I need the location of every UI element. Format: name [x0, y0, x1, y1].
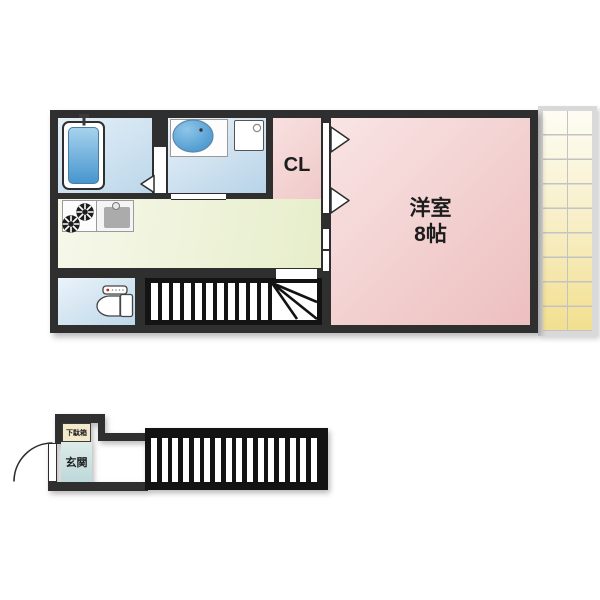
kitchen-room-door: [322, 228, 330, 272]
closet-label: CL: [273, 118, 321, 213]
toilet-room: [58, 278, 135, 325]
balcony-tile-grid: [543, 111, 592, 331]
entrance-wall: [55, 414, 62, 444]
lower-stairs-treads: [151, 438, 317, 482]
entrance-wall: [48, 482, 148, 491]
washbasin-counter: [170, 119, 228, 157]
washroom-sliding-opening: [171, 193, 226, 200]
kitchen-sink: [104, 207, 130, 228]
closet-folding-door: [322, 122, 330, 214]
kitchen-counter: [62, 200, 134, 232]
bathtub-basin: [68, 127, 99, 184]
washing-machine-pan: [234, 120, 264, 151]
bathroom-folding-door: [153, 147, 167, 193]
entrance-door: [48, 443, 57, 482]
entrance-label: 玄関: [61, 442, 92, 482]
stairs-winder: [272, 283, 317, 320]
kitchen-stove: [63, 201, 97, 231]
upper-stairs-treads: [151, 283, 268, 320]
stairs-landing-opening: [276, 269, 317, 279]
shoe-cabinet-label: 下駄箱: [62, 423, 91, 442]
entrance-door-swing-arc: [14, 443, 53, 482]
main-room-label: 洋室 8帖: [331, 118, 530, 325]
corridor-wall: [98, 433, 147, 441]
main-room-name: 洋室: [410, 196, 452, 221]
floor-plan-screenshot: CL 洋室 8帖 下駄箱 玄関: [0, 0, 600, 600]
main-room-size: 8帖: [414, 222, 447, 247]
